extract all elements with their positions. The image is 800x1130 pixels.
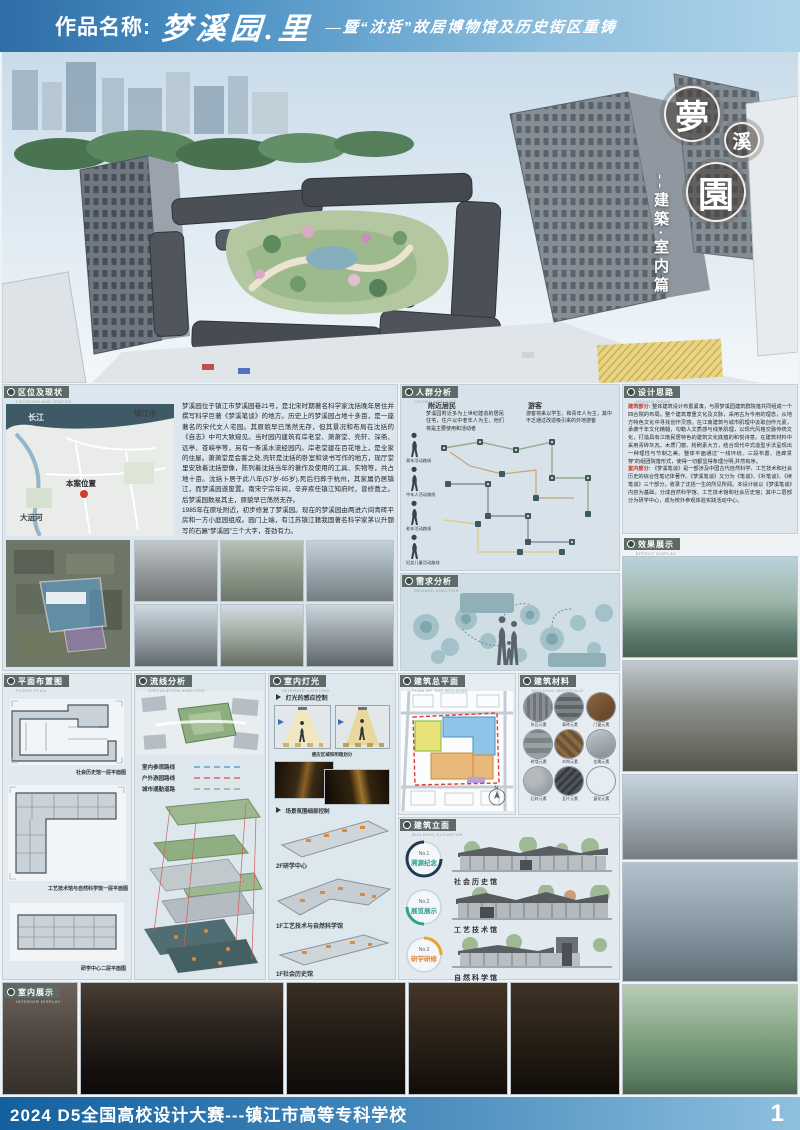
footer-text: 2024 D5全国高校设计大赛---镇江市高等专科学校	[10, 1101, 407, 1126]
section-bullet-icon	[139, 677, 147, 685]
arrow-icon	[276, 807, 281, 813]
svg-text:中年人活动路线: 中年人活动路线	[406, 491, 436, 498]
location-panel: 区位及现状 LOCATION AND STATUS 长江 镇江市 本案位置 大运…	[2, 384, 398, 671]
route-line-commute	[194, 788, 240, 790]
project-subtitle: —暨“沈括”故居博物馆及历史街区重铸	[325, 16, 617, 37]
floorplan-caption-1: 社会历史馆一层平面图	[10, 769, 126, 776]
floorplan-drawing-3	[10, 903, 124, 961]
section-header-elevation: 建筑立面	[400, 819, 456, 831]
section-subtitle-en: LOCATION AND STATUS	[16, 399, 71, 404]
section-subtitle-en: BUILDING ELEVATION	[412, 832, 463, 837]
elevation-drawing-2	[450, 885, 614, 923]
section-header-materials: 建筑材料	[520, 675, 576, 687]
section-header-floorplan: 平面布置图	[4, 675, 69, 687]
site-boundary-diagram	[6, 540, 130, 667]
activity-icon-node	[441, 439, 591, 555]
lit-plan-axon-1f-craft	[272, 871, 392, 919]
sensor-icon	[338, 719, 344, 725]
render-photo-wall-alley	[622, 660, 798, 772]
design-ideas-text: 建筑部分: 整体建筑设计布置紧凑，与原梦溪园建筑群院落共同组成一个四合院的布局。…	[628, 404, 792, 530]
section-bullet-icon	[7, 677, 15, 685]
material-swatch: 木构元素	[555, 730, 584, 765]
section-subtitle-en: CIRCULATION ANALYSIS	[148, 688, 205, 693]
section-bullet-icon	[627, 540, 635, 548]
svg-text:大运河: 大运河	[20, 512, 43, 522]
section-bullet-icon	[403, 821, 411, 829]
route-line-indoor	[194, 766, 240, 768]
street-photo-aerial	[306, 540, 394, 602]
material-swatch: 石材元素	[524, 767, 553, 802]
render-photo-garden-path	[622, 984, 798, 1095]
section-subtitle-en: INTERIOR DISPLAY	[16, 999, 61, 1004]
arch-part-label: 建筑部分:	[628, 404, 650, 410]
section-bullet-icon	[403, 677, 411, 685]
section-header-siteplan: 建筑总平面	[400, 675, 465, 687]
section-bullet-icon	[405, 388, 413, 396]
route-line-outdoor	[194, 777, 240, 779]
section-subtitle-en: DESIGN IDEAS	[636, 399, 670, 404]
work-name-label: 作品名称:	[55, 11, 151, 41]
floorplan-drawing-1	[10, 699, 124, 765]
section-subtitle-en: PLAN OF THE BUILDING	[412, 688, 468, 693]
circulation-panel: 流线分析 CIRCULATION ANALYSIS 室内参观路线 户外游园路线 …	[134, 673, 266, 980]
interior-photo-main-hall	[80, 982, 284, 1095]
street-photo-road-2	[220, 604, 304, 667]
interior-part-label: 室内部分:	[628, 466, 650, 472]
material-swatch: 砖墙元素	[524, 730, 553, 765]
street-photo-road-1	[134, 604, 218, 667]
svg-text:展览展示: 展览展示	[410, 906, 438, 915]
section-header-circulation: 流线分析	[136, 675, 192, 687]
svg-text:本案位置: 本案位置	[65, 478, 96, 488]
svg-text:研学研修: 研学研修	[411, 954, 438, 963]
section-header-design: 设计思路	[624, 386, 680, 398]
section-header-location: 区位及现状	[4, 386, 69, 398]
crowd-panel: 人群分析 CROWD ANALYSIS 附近居民 梦溪园附近多为上世纪建造的居民…	[400, 384, 620, 571]
circulation-legend: 室内参观路线 户外游园路线 城市通勤道路	[142, 761, 240, 794]
left-tower	[80, 156, 162, 354]
lighting-diagram-2	[335, 705, 390, 749]
render-photo-pond-courtyard	[622, 556, 798, 658]
residents-text: 梦溪园附近多为上世纪建造的居民住宅，住户以中老年人为主，他们将是主要使用和活动者	[426, 411, 504, 433]
siteplan-drawing: N	[401, 691, 513, 811]
material-swatch: 灰瓦元素	[524, 693, 553, 728]
footer-bar: 2024 D5全国高校设计大赛---镇江市高等专科学校 1	[0, 1097, 800, 1130]
elevation-badge-2: No.2 展览展示	[404, 887, 444, 927]
lit-plan-axon-2f	[272, 817, 392, 859]
materials-panel: 建筑材料 BUILDING MATERIALS 灰瓦元素 青砖元素 门窗元素 砖…	[518, 673, 620, 815]
section-bullet-icon	[523, 677, 531, 685]
section-subtitle-en: INTERIOR LIGHTING	[282, 688, 330, 693]
section-header-lighting: 室内灯光	[270, 675, 326, 687]
family-silhouette-icon	[497, 616, 519, 665]
legend-item: 户外游园路线	[142, 772, 240, 783]
svg-text:镇江市: 镇江市	[134, 408, 157, 418]
street-photo-old-house	[134, 540, 218, 602]
section-bullet-icon	[627, 388, 635, 396]
floorplan-panel: 平面布置图 FLOOR PLAN 社会历史馆一层平面图 工艺技术馆与自然科学馆一…	[2, 673, 132, 980]
sensor-icon	[278, 719, 284, 725]
interior-photo-exhibit-2	[408, 982, 508, 1095]
street-photo-corner	[306, 604, 394, 667]
elevation-badge-3: No.3 研学研修	[404, 935, 444, 975]
svg-text:溯源纪念: 溯源纪念	[411, 858, 438, 867]
arrow-icon	[276, 694, 281, 700]
section-subtitle-en: FLOOR PLAN	[16, 688, 46, 693]
lighting-diagram-1	[274, 705, 331, 749]
hero-aerial-render: 夢 溪 園 --建築·室内篇	[2, 52, 798, 383]
siteplan-panel: 建筑总平面 PLAN OF THE BUILDING N	[398, 673, 516, 815]
svg-text:青年活动路线: 青年活动路线	[406, 457, 432, 464]
floorplan-caption-3: 研学中心二层平面图	[10, 965, 126, 972]
section-bullet-icon	[7, 988, 15, 996]
design-ideas-panel: 设计思路 DESIGN IDEAS 建筑部分: 整体建筑设计布置紧凑，与原梦溪园…	[622, 384, 798, 534]
vertical-subtitle: --建築·室内篇	[650, 174, 671, 384]
circulation-axon-site	[136, 691, 264, 755]
lighting-panel: 室内灯光 INTERIOR LIGHTING 灯光的感应控制 感应区域和明暗划分…	[268, 673, 396, 980]
courtyard-garden	[226, 210, 449, 314]
title-badge-xi: 溪	[724, 122, 760, 158]
svg-text:N: N	[495, 786, 499, 792]
corridor-photo-2	[324, 769, 390, 805]
floorplan-caption-2: 工艺技术馆与自然科学馆一层平面图	[4, 885, 128, 892]
svg-text:老年活动路线: 老年活动路线	[406, 525, 432, 532]
section-subtitle-en: EFFECT DISPLAY	[636, 551, 676, 556]
material-swatch: 金属元素	[587, 730, 616, 765]
lit-plan-label-3: 1F社会历史馆	[276, 969, 313, 978]
svg-text:No.2: No.2	[419, 899, 430, 905]
section-bullet-icon	[273, 677, 281, 685]
interior-photo-exhibit-1	[286, 982, 406, 1095]
project-title: 梦溪园.里	[159, 4, 315, 48]
demand-bubble-diagram	[402, 589, 618, 669]
elevation-drawing-3	[450, 933, 614, 971]
activity-route-diagram: 青年活动路线 中年人活动路线 老年活动路线 妇女儿童活动路线	[404, 432, 616, 568]
demand-panel: 需求分析 DEMAND ANALYSIS	[400, 573, 620, 671]
lighting-item-2: 场景氛围细部控制	[276, 807, 330, 815]
elevation-panel: 建筑立面 BUILDING ELEVATION No.1 溯源纪念 社会历史馆 …	[398, 817, 620, 980]
lit-plan-label-1: 2F研学中心	[276, 861, 307, 870]
section-header-interior: 室内展示	[4, 986, 60, 998]
section-subtitle-en: CROWD ANALYSIS	[414, 399, 457, 404]
render-photo-street-view	[622, 774, 798, 860]
title-badge-yuan: 園	[686, 162, 746, 222]
svg-text:妇女儿童活动路线: 妇女儿童活动路线	[406, 559, 440, 566]
lit-plan-axon-1f-history	[272, 931, 392, 967]
section-bullet-icon	[7, 388, 15, 396]
interior-photo-exhibit-3	[510, 982, 620, 1095]
render-photo-aerial-residential	[622, 862, 798, 982]
exploded-axonometric	[136, 797, 264, 977]
material-swatch: 窗花元素	[587, 767, 616, 802]
lighting-item-1: 灯光的感应控制	[276, 693, 328, 702]
legend-item: 室内参观路线	[142, 761, 240, 772]
visitors-text: 游客将来以学生、和青年人为主，其中不乏通过改造吸引来的外地游客	[526, 411, 612, 426]
svg-text:No.1: No.1	[419, 851, 430, 857]
material-swatch: 青砖元素	[555, 693, 584, 728]
section-subtitle-en: BUILDING MATERIALS	[532, 688, 583, 693]
street-photo-aerial-oldtown	[220, 540, 304, 602]
section-header-effect: 效果展示	[624, 538, 680, 550]
material-swatch-grid: 灰瓦元素 青砖元素 门窗元素 砖墙元素 木构元素 金属元素 石材元素 瓦片元素 …	[524, 693, 616, 802]
location-intro-text: 梦溪园位于镇江市梦溪园巷21号，是北宋时期著名科学家沈括晚年居住并撰写科学巨著《…	[182, 402, 394, 538]
svg-text:No.3: No.3	[419, 947, 430, 953]
city-map: 长江 镇江市 本案位置 大运河	[6, 404, 174, 536]
material-swatch: 瓦片元素	[555, 767, 584, 802]
section-header-demand: 需求分析	[402, 575, 458, 587]
section-subtitle-en: DEMAND ANALYSIS	[414, 588, 459, 593]
lighting-caption-1: 感应区域和明暗划分	[274, 752, 390, 758]
elevation-badge-1: No.1 溯源纪念	[404, 839, 444, 879]
page-number: 1	[771, 1100, 784, 1128]
section-bullet-icon	[405, 577, 413, 585]
lit-plan-label-2: 1F工艺技术与自然科学馆	[276, 921, 343, 930]
title-banner: 作品名称: 梦溪园.里 —暨“沈括”故居博物馆及历史街区重铸	[0, 0, 800, 52]
visitors-title: 游客	[528, 401, 542, 411]
svg-text:长江: 长江	[28, 412, 44, 422]
elevation-drawing-1	[450, 837, 614, 875]
site-marker-icon	[80, 490, 88, 498]
site-zone-overlay	[40, 578, 106, 632]
section-header-crowd: 人群分析	[402, 386, 458, 398]
floorplan-drawing-2	[8, 785, 126, 881]
title-badge-meng: 夢	[664, 86, 720, 142]
legend-item: 城市通勤道路	[142, 783, 240, 794]
material-swatch: 门窗元素	[587, 693, 616, 728]
